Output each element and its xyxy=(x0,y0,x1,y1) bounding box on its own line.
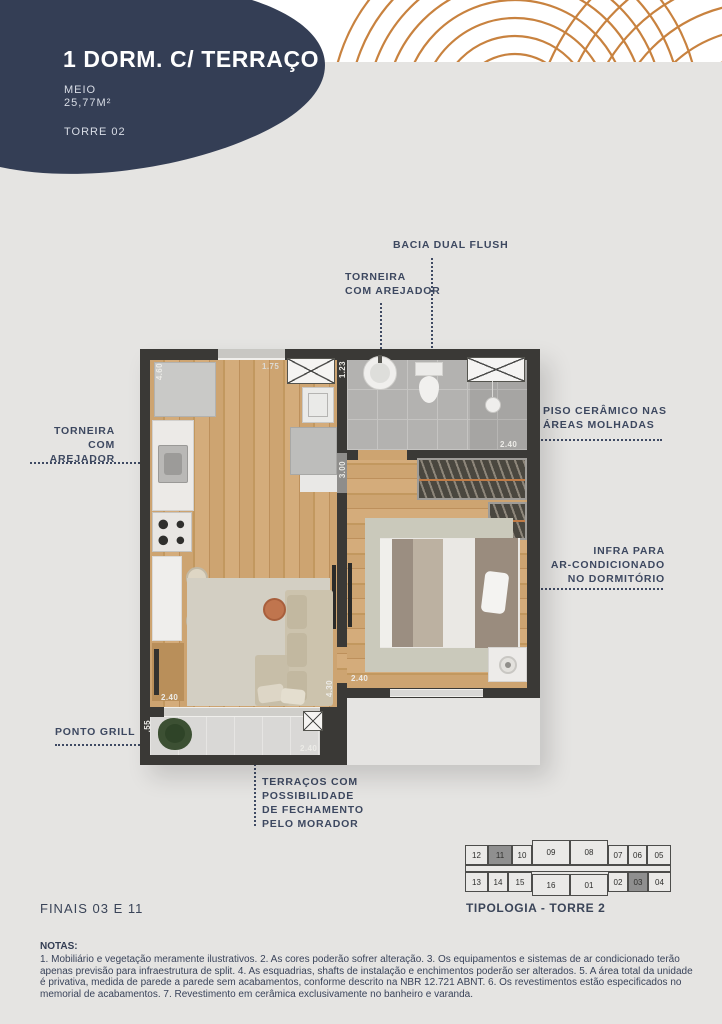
keyplan-caption: TIPOLOGIA - TORRE 2 xyxy=(466,901,605,915)
bed-duvet xyxy=(443,539,475,647)
dim-living-side: 4.30 xyxy=(325,680,334,697)
terrace-sliding-door xyxy=(164,707,320,717)
bathroom-window-icon xyxy=(467,357,525,382)
plant xyxy=(158,718,192,750)
shower-head xyxy=(485,397,501,413)
leader-grill xyxy=(55,744,140,746)
washing-machine xyxy=(302,387,334,423)
keyplan-unit-04: 04 xyxy=(648,872,671,892)
grill-front xyxy=(154,649,159,695)
sofa-cushion xyxy=(287,633,307,667)
dim-terrace-side: .55 xyxy=(143,720,152,732)
coffee-table xyxy=(263,598,286,621)
bed-sheet xyxy=(380,539,392,647)
callout-bacia-dual-flush: BACIA DUAL FLUSH xyxy=(393,238,508,252)
notes-body: 1. Mobiliário e vegetação meramente ilus… xyxy=(40,954,698,1000)
basin-bowl xyxy=(370,363,390,383)
bed-blanket xyxy=(392,539,413,647)
keyplan-unit-13: 13 xyxy=(465,872,488,892)
dim-terrace-width: 2.40 xyxy=(300,744,317,753)
keyplan-unit-02: 02 xyxy=(608,872,628,892)
dim-kitchen-wall: 4.60 xyxy=(155,363,164,380)
bathroom-basin xyxy=(363,356,397,390)
keyplan-unit-05: 05 xyxy=(647,845,671,865)
keyplan-corridor xyxy=(465,865,671,872)
bed xyxy=(380,538,520,648)
dim-bath-side: 1.23 xyxy=(338,361,347,378)
sofa-pillow xyxy=(280,688,305,705)
unit-variant: MEIO xyxy=(64,84,96,96)
keyplan-unit-03: 03 xyxy=(628,872,648,892)
keyplan-unit-16: 16 xyxy=(532,874,570,896)
toilet-tank xyxy=(415,362,443,376)
bedroom-window xyxy=(390,689,483,697)
bathroom-door-opening xyxy=(358,450,407,460)
dim-entry-door: 1.75 xyxy=(262,362,279,371)
callout-ponto-grill: PONTO GRILL xyxy=(55,725,135,739)
entry-door xyxy=(218,349,285,360)
callout-terraco: TERRAÇOS COM POSSIBILIDADE DE FECHAMENTO… xyxy=(262,775,364,831)
page-title: 1 DORM. C/ TERRAÇO xyxy=(63,46,319,73)
callout-torneira-top: TORNEIRA COM AREJADOR xyxy=(345,270,441,298)
wardrobe xyxy=(417,458,527,500)
finais-label: FINAIS 03 E 11 xyxy=(40,901,143,916)
keyplan-unit-01: 01 xyxy=(570,874,608,896)
shelf xyxy=(300,475,337,492)
terrace-window-icon xyxy=(303,711,323,731)
keyplan-unit-10: 10 xyxy=(512,845,532,865)
keyplan-unit-09: 09 xyxy=(532,840,570,865)
keyplan-unit-15: 15 xyxy=(508,872,532,892)
bed-pillow xyxy=(481,571,510,615)
keyplan-unit-06: 06 xyxy=(628,845,647,865)
keyplan-unit-12: 12 xyxy=(465,845,488,865)
kitchen-counter xyxy=(152,556,182,641)
callout-piso-ceramico: PISO CERÂMICO NAS ÁREAS MOLHADAS xyxy=(543,404,667,432)
living-window-icon xyxy=(287,358,335,384)
washer-door xyxy=(308,393,328,417)
sink-bowl xyxy=(164,453,182,475)
cabinet xyxy=(290,427,337,475)
bed-throw xyxy=(413,539,443,647)
cooktop xyxy=(152,512,192,552)
tv-bedroom xyxy=(348,563,352,627)
dim-bedroom-side: 3.00 xyxy=(338,461,347,478)
dim-bath-width: 2.40 xyxy=(500,440,517,449)
outside-mask xyxy=(347,698,540,765)
plant-leaves xyxy=(165,724,185,743)
keyplan-unit-07: 07 xyxy=(608,845,628,865)
keyplan-unit-14: 14 xyxy=(488,872,508,892)
callout-torneira-left: TORNEIRA COM AREJADOR xyxy=(23,424,115,466)
sofa-cushion xyxy=(287,595,307,629)
tower-label: TORRE 02 xyxy=(64,126,126,138)
keyplan: 12 11 10 09 08 07 06 05 13 14 15 16 01 0… xyxy=(463,838,691,896)
dim-bedroom-width: 2.40 xyxy=(351,674,368,683)
bedroom-door-opening xyxy=(337,647,347,683)
dim-living-width: 2.40 xyxy=(161,693,178,702)
keyplan-unit-08: 08 xyxy=(570,840,608,865)
keyplan-unit-11: 11 xyxy=(488,845,512,865)
floor-plan: 4.60 1.75 1.23 3.00 2.40 2.40 4.30 2.40 … xyxy=(140,349,540,765)
basin-tap xyxy=(378,355,382,363)
callout-infra-ar: INFRA PARA AR-CONDICIONADO NO DORMITÓRIO xyxy=(545,544,665,586)
lamp-center xyxy=(505,662,511,668)
unit-area: 25,77M² xyxy=(64,97,111,109)
flyer-page: 1 DORM. C/ TERRAÇO MEIO 25,77M² TORRE 02… xyxy=(0,0,722,1024)
wardrobe-rod xyxy=(419,479,525,481)
notes-heading: NOTAS: xyxy=(40,941,78,952)
nightstand xyxy=(488,647,527,682)
